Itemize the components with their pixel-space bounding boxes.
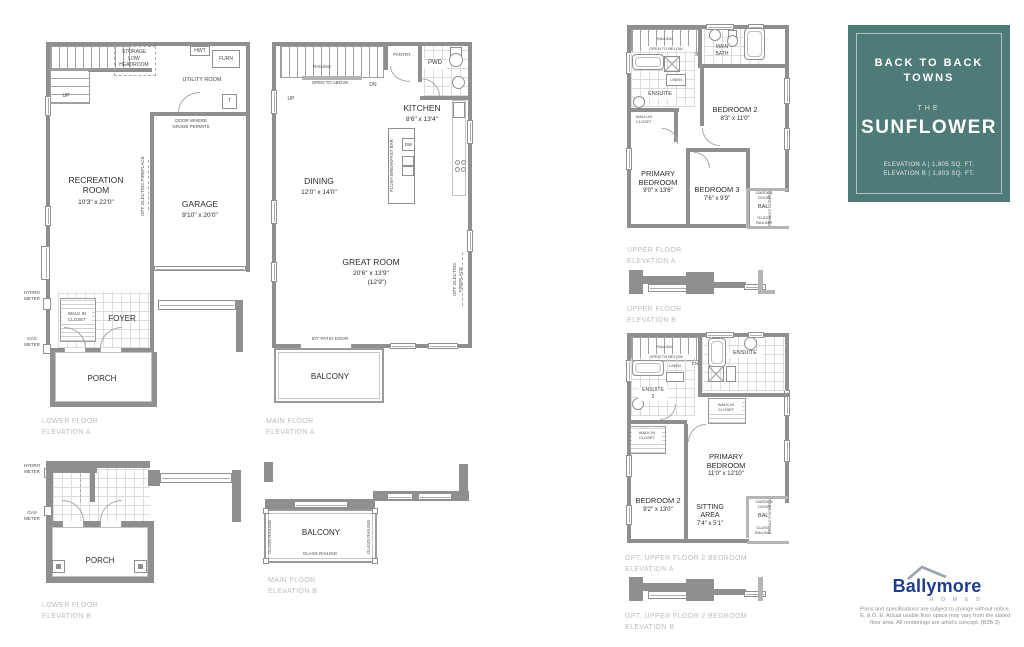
wall (459, 464, 468, 501)
sink (709, 29, 721, 41)
primary-bedroom-label: PRIMARY BEDROOM (632, 170, 684, 187)
foyer-label: FOYER (100, 314, 144, 324)
hydro-meter-label: HYDRO METER (20, 463, 44, 473)
porch-label: PORCH (72, 374, 132, 384)
railing-label: RAILING (650, 344, 680, 350)
bathtub (708, 338, 726, 367)
window (784, 78, 790, 104)
primary-bedroom-dims: 9'0" x 13'6" (632, 188, 684, 195)
walk-in-closet-label: WALK IN CLOSET (62, 311, 92, 323)
bedroom2-label: BEDROOM 2 (703, 106, 767, 115)
balcony-post (372, 508, 378, 514)
door-grade-label: DOOR WHERE GRADE PERMITS (168, 118, 214, 130)
wall (150, 112, 154, 352)
t-label: T (222, 98, 237, 106)
wall (627, 420, 687, 424)
walk-in-closet-label: WALK-IN CLOSET (630, 114, 658, 125)
wall (468, 42, 472, 348)
wall (629, 577, 643, 601)
wall (763, 290, 775, 294)
toilet (448, 47, 464, 67)
wall (643, 583, 689, 591)
utility-room-label: UTILITY ROOM (160, 77, 244, 85)
porch-wall (50, 402, 157, 407)
patio-door-label: 6'0" PATIO DOOR (302, 336, 358, 343)
railing-label: RAILING (650, 36, 680, 42)
open-to-above-label: OPEN TO ABOVE (300, 80, 360, 87)
porch-wall (148, 527, 154, 582)
wall (758, 577, 763, 601)
garage-label: GARAGE (158, 200, 242, 211)
wall (698, 64, 789, 68)
great-room-dims-alt: (12'9") (352, 279, 402, 287)
burner (455, 167, 460, 172)
window (626, 148, 632, 170)
burner (455, 160, 460, 165)
privacy-screen-label: PRIVACY SCREEN (767, 499, 774, 535)
gas-meter-label: GAS METER (20, 336, 44, 346)
glass-railing-label: GLASS RAILING (267, 515, 275, 559)
linen-cabinet (666, 372, 684, 382)
burner (461, 167, 466, 172)
glass-railing-label: GLASS RAILING (296, 551, 344, 559)
plan-caption: UPPER FLOOR ELEVATION A (627, 246, 682, 267)
porch-post (52, 560, 65, 573)
window (41, 246, 50, 280)
plan-caption: LOWER FLOOR ELEVATION B (42, 601, 98, 622)
bathtub (744, 28, 765, 60)
walk-in-closet-label: WALK-IN CLOSET (632, 430, 662, 441)
window (387, 493, 413, 500)
wall (698, 29, 702, 68)
disclaimer-line: E. & O. E. Actual usable floor space may… (850, 613, 1020, 620)
glass-railing-label: GLASS RAILING (748, 215, 780, 225)
door-arc (702, 128, 720, 146)
window (390, 343, 416, 349)
wall (686, 579, 714, 601)
sitting-area-label: SITTING AREA (692, 504, 728, 520)
door-arc (694, 152, 710, 168)
linen-label: LINEN (664, 363, 686, 370)
kitchen-sink (402, 166, 414, 176)
card-elevation-b-sqft: ELEVATION B | 1,803 SQ. FT. (848, 171, 1010, 177)
glass-railing-label: GLASS RAILING (366, 515, 374, 559)
wall (643, 276, 689, 284)
plan-caption: MAIN FLOOR ELEVATION B (268, 576, 317, 597)
gas-meter (44, 506, 52, 516)
window (428, 343, 458, 349)
primary-bedroom-label: PRIMARY BEDROOM (699, 453, 753, 470)
bedroom3-label: BEDROOM 3 (688, 186, 746, 195)
ensuite2-label: ENSUITE 2 (638, 387, 668, 401)
dn-label: DN (366, 82, 380, 89)
porch-wall (152, 352, 157, 406)
balcony-label: BALCONY (302, 372, 358, 382)
wall (418, 46, 422, 82)
brochure-page: STORAGE LOW HEADROOM HWT FURN T UTILITY … (0, 0, 1024, 647)
window (467, 120, 473, 144)
balcony-label: BALCONY (300, 528, 342, 538)
disclaimer: Plans and specifications are subject to … (850, 606, 1020, 627)
fireplace-label: OPT. ELECTRIC FIREPLACE (140, 156, 148, 216)
walk-in-closet-label: WALK-IN CLOSET (710, 402, 742, 413)
glass-railing-label: GLASS RAILING (746, 525, 780, 535)
card-model-name: SUNFLOWER (848, 117, 1010, 139)
sink (744, 337, 757, 350)
door-arc (390, 66, 410, 82)
balcony-post (263, 508, 269, 514)
great-room-dims: 20'6" x 13'9" (332, 270, 410, 278)
wall (712, 589, 746, 595)
porch-post (134, 560, 147, 573)
window (271, 200, 277, 224)
pantry-label: PANTRY (386, 52, 418, 60)
card-title-line1: BACK TO BACK (848, 57, 1010, 69)
window (467, 230, 473, 252)
balcony-wall (747, 541, 789, 544)
brand-name: Ballymore (877, 576, 997, 597)
plan-caption: UPPER FLOOR ELEVATION B (627, 305, 682, 326)
main-bath-label: MAIN BATH (708, 44, 736, 58)
wall (712, 282, 746, 288)
kitchen-label: KITCHEN (398, 104, 446, 115)
dining-dims: 12'0" x 14'0" (290, 189, 348, 197)
disclaimer-line: Plans and specifications are subject to … (850, 606, 1020, 613)
wall (627, 108, 679, 112)
up-label: UP (58, 93, 74, 100)
hydro-meter (43, 298, 51, 310)
fireplace-outline (148, 160, 149, 210)
wall (686, 272, 714, 294)
gas-meter-label: GAS METER (20, 510, 44, 520)
porch-label: PORCH (72, 556, 128, 566)
title-card: BACK TO BACK TOWNS THE SUNFLOWER ELEVATI… (848, 25, 1010, 202)
hwt-label: HWT (190, 48, 210, 56)
window (784, 128, 790, 150)
sitting-area-dims: 7'4" x 5'1" (692, 521, 728, 528)
furn-label: FURN (212, 56, 240, 64)
wall (264, 462, 273, 482)
window (626, 455, 632, 477)
window (160, 473, 232, 483)
fireplace-label: OPT. ELECTRIC FIREPLACE (452, 250, 460, 308)
plan-caption: OPT. UPPER FLOOR 2 BEDROOM ELEVATION A (625, 554, 747, 575)
window (418, 493, 452, 500)
window (271, 90, 277, 114)
wall (627, 539, 749, 543)
linen-label: LINEN (666, 77, 686, 84)
dw-label: DW (402, 142, 415, 149)
up-label: UP (284, 96, 298, 103)
garage-door (154, 266, 246, 271)
bathtub (632, 54, 664, 70)
porch-wall (46, 577, 154, 583)
fridge (453, 102, 465, 118)
recreation-room-label: RECREATION ROOM (56, 176, 136, 198)
wall (46, 461, 150, 468)
wall (236, 300, 243, 352)
wall (698, 337, 702, 397)
burner (461, 160, 466, 165)
door-arc (178, 92, 200, 112)
card-the: THE (848, 105, 1010, 112)
wall (272, 42, 276, 348)
wall (785, 25, 789, 192)
window (784, 440, 790, 462)
card-title-line2: TOWNS (848, 72, 1010, 84)
ensuite-label: ENSUITE (644, 91, 676, 99)
kitchen-sink (402, 156, 414, 166)
hydro-meter-label: HYDRO METER (20, 290, 44, 300)
wall (148, 470, 160, 486)
window (271, 262, 277, 282)
bedroom2-label: BEDROOM 2 (628, 497, 688, 506)
window (45, 206, 51, 226)
dining-label: DINING (290, 177, 348, 188)
sink (452, 76, 465, 89)
door-arc (688, 424, 706, 442)
great-room-label: GREAT ROOM (332, 258, 410, 269)
garage-dims: 9'10" x 20'0" (158, 212, 242, 221)
wall (232, 470, 241, 522)
plan-caption: OPT. UPPER FLOOR 2 BEDROOM ELEVATION B (625, 612, 747, 633)
bedroom2-dims: 9'2" x 13'0" (628, 507, 688, 514)
primary-bedroom-dims: 11'0" x 12'10" (697, 471, 755, 478)
plan-caption: MAIN FLOOR ELEVATION A (266, 417, 315, 438)
bedroom2-dims: 8'3" x 11'0" (703, 116, 767, 123)
brand-sub: H O M E S (922, 597, 990, 603)
bathtub (632, 360, 664, 376)
window (158, 300, 236, 310)
ensuite-label: ENSUITE (728, 350, 762, 358)
card-elevation-a-sqft: ELEVATION A | 1,805 SQ. FT. (848, 162, 1010, 168)
storage-label: STORAGE LOW HEADROOM (116, 49, 152, 65)
patio-door (294, 501, 348, 508)
kitchen-dims: 8'6" x 13'4" (398, 116, 446, 124)
shower (708, 366, 724, 382)
wall (150, 112, 250, 116)
privacy-screen-label: PRIVACY SCREEN (767, 191, 774, 227)
pwd-label: PWD (424, 60, 446, 69)
wall (629, 270, 643, 294)
shower (664, 56, 680, 72)
disclaimer-line: floor area. All renderings are artist's … (850, 620, 1020, 627)
railing-label: RAILING (306, 64, 338, 71)
recreation-room-dims: 10'3" x 22'0" (56, 199, 136, 208)
stairs (280, 46, 384, 78)
plan-caption: LOWER FLOOR ELEVATION A (42, 417, 98, 438)
door-arc (660, 404, 676, 420)
wall (90, 468, 95, 502)
wall (698, 393, 789, 397)
closet-outline (80, 474, 81, 502)
bedroom3-dims: 7'6" x 9'9" (688, 196, 746, 203)
vanity (726, 366, 736, 382)
breakfast-bar-label: FLUSH BREAKFAST BAR (389, 131, 396, 201)
wall (246, 42, 250, 272)
